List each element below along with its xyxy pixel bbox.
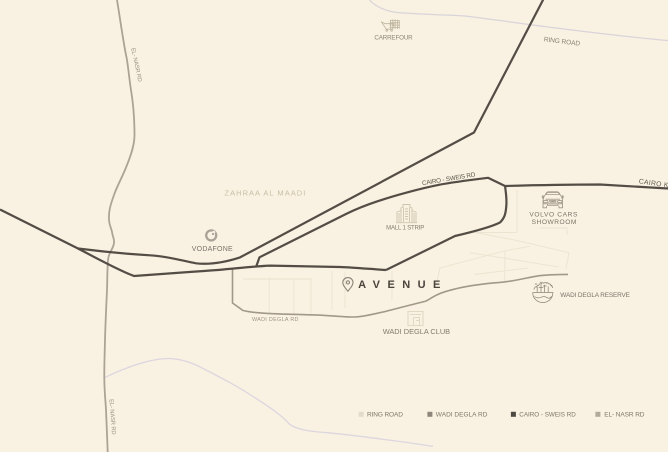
svg-text:MALL 1 STRIP: MALL 1 STRIP (386, 225, 424, 231)
svg-text:WADI DEGLA RD: WADI DEGLA RD (436, 412, 488, 419)
svg-text:CAIRO - SWEIS RD: CAIRO - SWEIS RD (519, 412, 576, 419)
svg-text:VOLVO CARS: VOLVO CARS (529, 212, 578, 219)
svg-text:WADI DEGLA RESERVE: WADI DEGLA RESERVE (560, 292, 630, 299)
svg-text:VODAFONE: VODAFONE (192, 246, 233, 253)
svg-text:CARREFOUR: CARREFOUR (374, 34, 413, 41)
svg-text:RING ROAD: RING ROAD (367, 412, 403, 419)
svg-text:WADI DEGLA CLUB: WADI DEGLA CLUB (383, 327, 450, 336)
svg-text:EL- NASR RD: EL- NASR RD (604, 412, 645, 419)
svg-text:ZAHRAA AL MAADI: ZAHRAA AL MAADI (225, 188, 306, 197)
svg-text:WADI DEGLA RD: WADI DEGLA RD (252, 317, 299, 323)
svg-text:SHOWROOM: SHOWROOM (532, 219, 577, 226)
